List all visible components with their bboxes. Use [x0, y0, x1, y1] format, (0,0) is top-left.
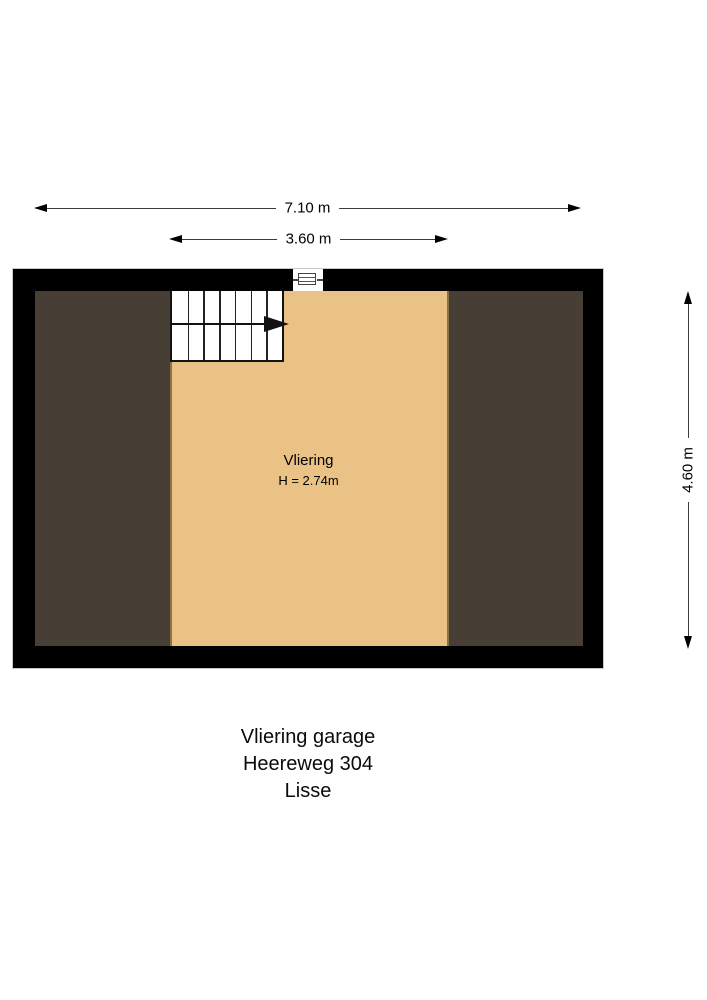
stair-tread-line: [235, 291, 237, 360]
stair-tread-line: [188, 291, 190, 360]
dimension-total-width: 7.10 m: [35, 201, 580, 215]
dimension-total-width-label: 7.10 m: [276, 201, 340, 216]
floorplan-interior: Vliering H = 2.74m: [35, 291, 581, 646]
dimension-attic-width: 3.60 m: [170, 232, 447, 246]
dim-arrow-left-icon: [169, 235, 182, 243]
floorplan-outer-wall: Vliering H = 2.74m: [13, 269, 603, 668]
stair-tread-line: [219, 291, 221, 360]
dim-arrow-right-icon: [435, 235, 448, 243]
under-roof-zone-left: [35, 291, 172, 646]
window-glazing-line: [299, 277, 315, 278]
dimension-total-depth: 4.60 m: [681, 292, 695, 648]
staircase: [170, 291, 284, 362]
stair-tread-line: [251, 291, 253, 360]
dimension-total-depth-label: 4.60 m: [681, 438, 696, 502]
under-roof-zone-right: [447, 291, 583, 646]
dim-arrow-right-icon: [568, 204, 581, 212]
dim-arrow-up-icon: [684, 291, 692, 304]
dim-arrow-left-icon: [34, 204, 47, 212]
title-line-building: Vliering garage: [13, 724, 603, 751]
stair-walk-line: [172, 323, 268, 325]
dimension-attic-width-label: 3.60 m: [277, 232, 341, 247]
window-glazing: [298, 273, 316, 285]
window-icon: [293, 269, 323, 291]
window-frame-line: [317, 279, 323, 281]
floorplan-page: 7.10 m 3.60 m 4.60 m Vliering H = 2.74m: [0, 0, 707, 1000]
room-name: Vliering: [172, 451, 445, 471]
room-ceiling-height: H = 2.74m: [172, 471, 445, 491]
stair-direction-arrow-icon: [264, 316, 289, 332]
dim-arrow-down-icon: [684, 636, 692, 649]
title-line-city: Lisse: [13, 778, 603, 805]
room-label: Vliering H = 2.74m: [172, 451, 445, 491]
stair-tread-line: [203, 291, 205, 360]
title-block: Vliering garage Heereweg 304 Lisse: [13, 724, 603, 805]
window-glazing-line: [299, 281, 315, 282]
title-line-street: Heereweg 304: [13, 751, 603, 778]
